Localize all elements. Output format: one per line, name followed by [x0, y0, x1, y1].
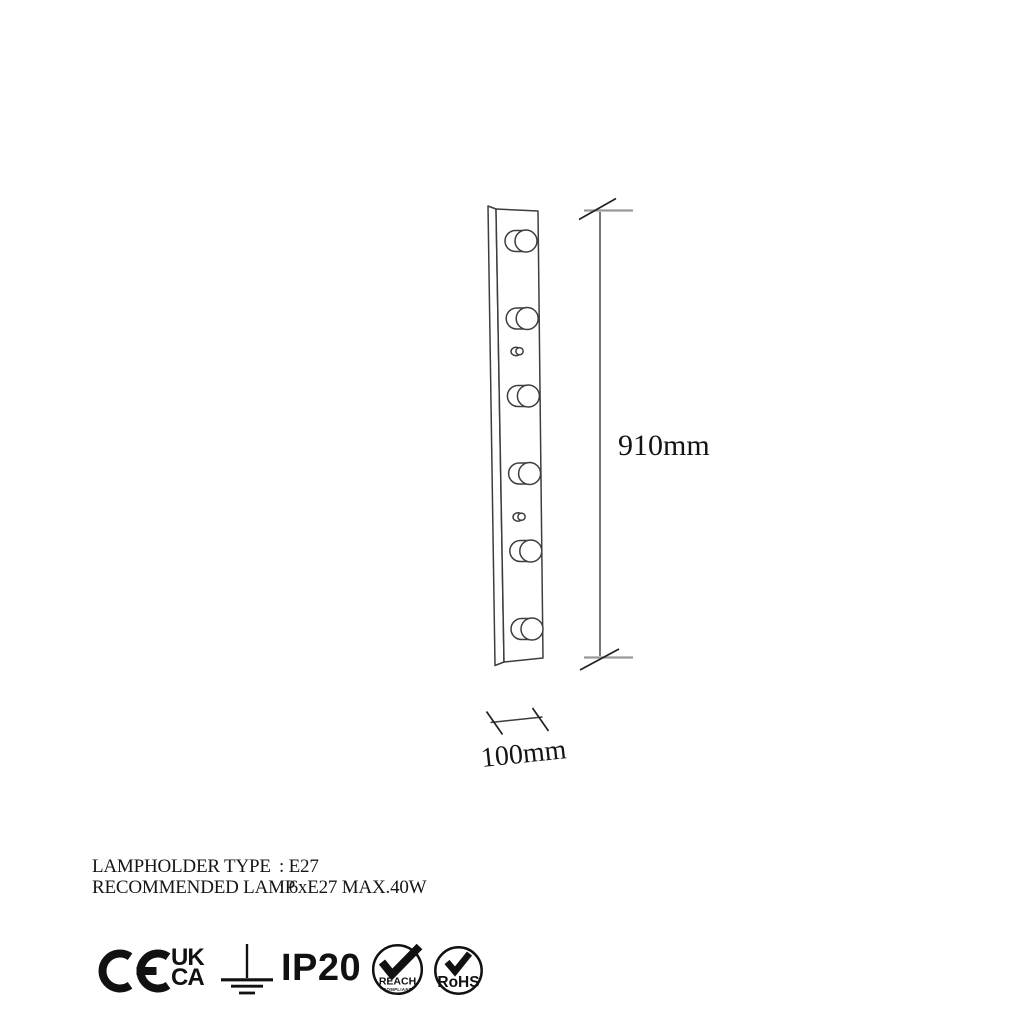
screw-detail [511, 347, 523, 355]
rohs-icon: RoHS [433, 945, 484, 996]
height-dimension: 910mm [579, 199, 710, 671]
rohs-label: RoHS [437, 974, 479, 991]
screw-detail [513, 513, 525, 521]
width-dimension: 100mm [479, 708, 568, 774]
lamp-holder [506, 308, 538, 330]
check-icon [447, 954, 470, 972]
lamp-holder [507, 385, 539, 407]
width-dimension-label: 100mm [479, 734, 568, 774]
fixture-technical-drawing: 910mm 100mm [0, 0, 1024, 780]
ce-mark-icon [96, 948, 174, 994]
check-icon [382, 947, 420, 975]
spec-sheet-page: 910mm 100mm LAMPHOLDER TYPE: E27 RECOMME… [0, 0, 1024, 1024]
reach-sublabel: COMPLIANT [383, 987, 412, 992]
spec-row-lampholder: LAMPHOLDER TYPE: E27 [92, 856, 426, 877]
dimension-tick-right [533, 708, 549, 731]
spec-text-block: LAMPHOLDER TYPE: E27 RECOMMENDED LAMP: 6… [92, 856, 426, 898]
reach-label: REACH [379, 976, 416, 988]
spec-label: LAMPHOLDER TYPE [92, 856, 279, 877]
dimension-tick-top [579, 199, 616, 220]
fixture-front-face [496, 209, 543, 662]
lamp-holder [509, 463, 541, 485]
ukca-bottom: CA [171, 968, 204, 988]
ukca-mark-icon: UK CA [171, 948, 204, 988]
lamp-holder [510, 540, 542, 562]
ip-rating-label: IP20 [281, 947, 361, 989]
dimension-tick-left [487, 712, 503, 735]
spec-value: : E27 [279, 856, 319, 877]
lamp-holder [505, 230, 537, 252]
reach-compliant-icon: REACH COMPLIANT [371, 943, 424, 996]
height-dimension-label: 910mm [618, 429, 710, 462]
spec-row-recommended-lamp: RECOMMENDED LAMP: 6xE27 MAX.40W [92, 877, 426, 898]
spec-label: RECOMMENDED LAMP [92, 877, 279, 898]
earth-ground-icon [218, 942, 276, 998]
lamp-holder [511, 618, 543, 640]
spec-value: : 6xE27 MAX.40W [279, 877, 426, 898]
